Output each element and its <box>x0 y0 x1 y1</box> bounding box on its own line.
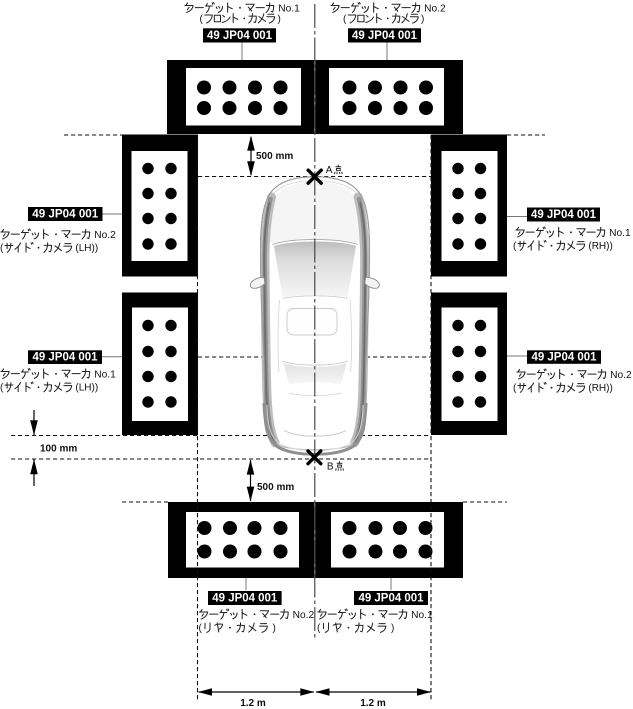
svg-text:No.1: No.1 <box>91 369 116 380</box>
svg-text:): ) <box>388 623 394 634</box>
svg-text:B: B <box>327 461 334 472</box>
svg-text:A: A <box>326 165 333 176</box>
svg-text:1.2 m: 1.2 m <box>240 698 266 709</box>
svg-text:): ) <box>275 14 281 25</box>
svg-text:(RH)): (RH)) <box>586 383 613 394</box>
svg-text:(RH)): (RH)) <box>586 241 613 252</box>
svg-text:49 JP04 001: 49 JP04 001 <box>359 591 424 605</box>
svg-text:49 JP04 001: 49 JP04 001 <box>352 28 417 42</box>
svg-text:49 JP04 001: 49 JP04 001 <box>531 207 596 221</box>
svg-text:49 JP04 001: 49 JP04 001 <box>207 28 272 42</box>
svg-text:): ) <box>418 14 424 25</box>
svg-text:): ) <box>270 623 276 634</box>
svg-text:(LH)): (LH)) <box>73 243 99 254</box>
svg-text:49 JP04 001: 49 JP04 001 <box>33 350 98 364</box>
svg-text:49 JP04 001: 49 JP04 001 <box>212 591 277 605</box>
svg-text:No.1: No.1 <box>408 610 433 621</box>
svg-text:500 mm: 500 mm <box>257 482 294 493</box>
svg-text:No.2: No.2 <box>607 370 632 381</box>
svg-text:500 mm: 500 mm <box>256 151 293 162</box>
svg-text:1.2 m: 1.2 m <box>360 698 386 709</box>
svg-text:No.2: No.2 <box>421 3 446 14</box>
svg-text:No.1: No.1 <box>275 3 300 14</box>
svg-text:No.1: No.1 <box>606 228 631 239</box>
svg-text:100 mm: 100 mm <box>40 444 77 455</box>
svg-text:49 JP04 001: 49 JP04 001 <box>32 207 98 221</box>
svg-text:No.2: No.2 <box>290 610 315 621</box>
svg-text:No.2: No.2 <box>91 230 116 241</box>
svg-text:(LH)): (LH)) <box>73 383 99 394</box>
svg-text:49 JP04 001: 49 JP04 001 <box>532 350 597 364</box>
